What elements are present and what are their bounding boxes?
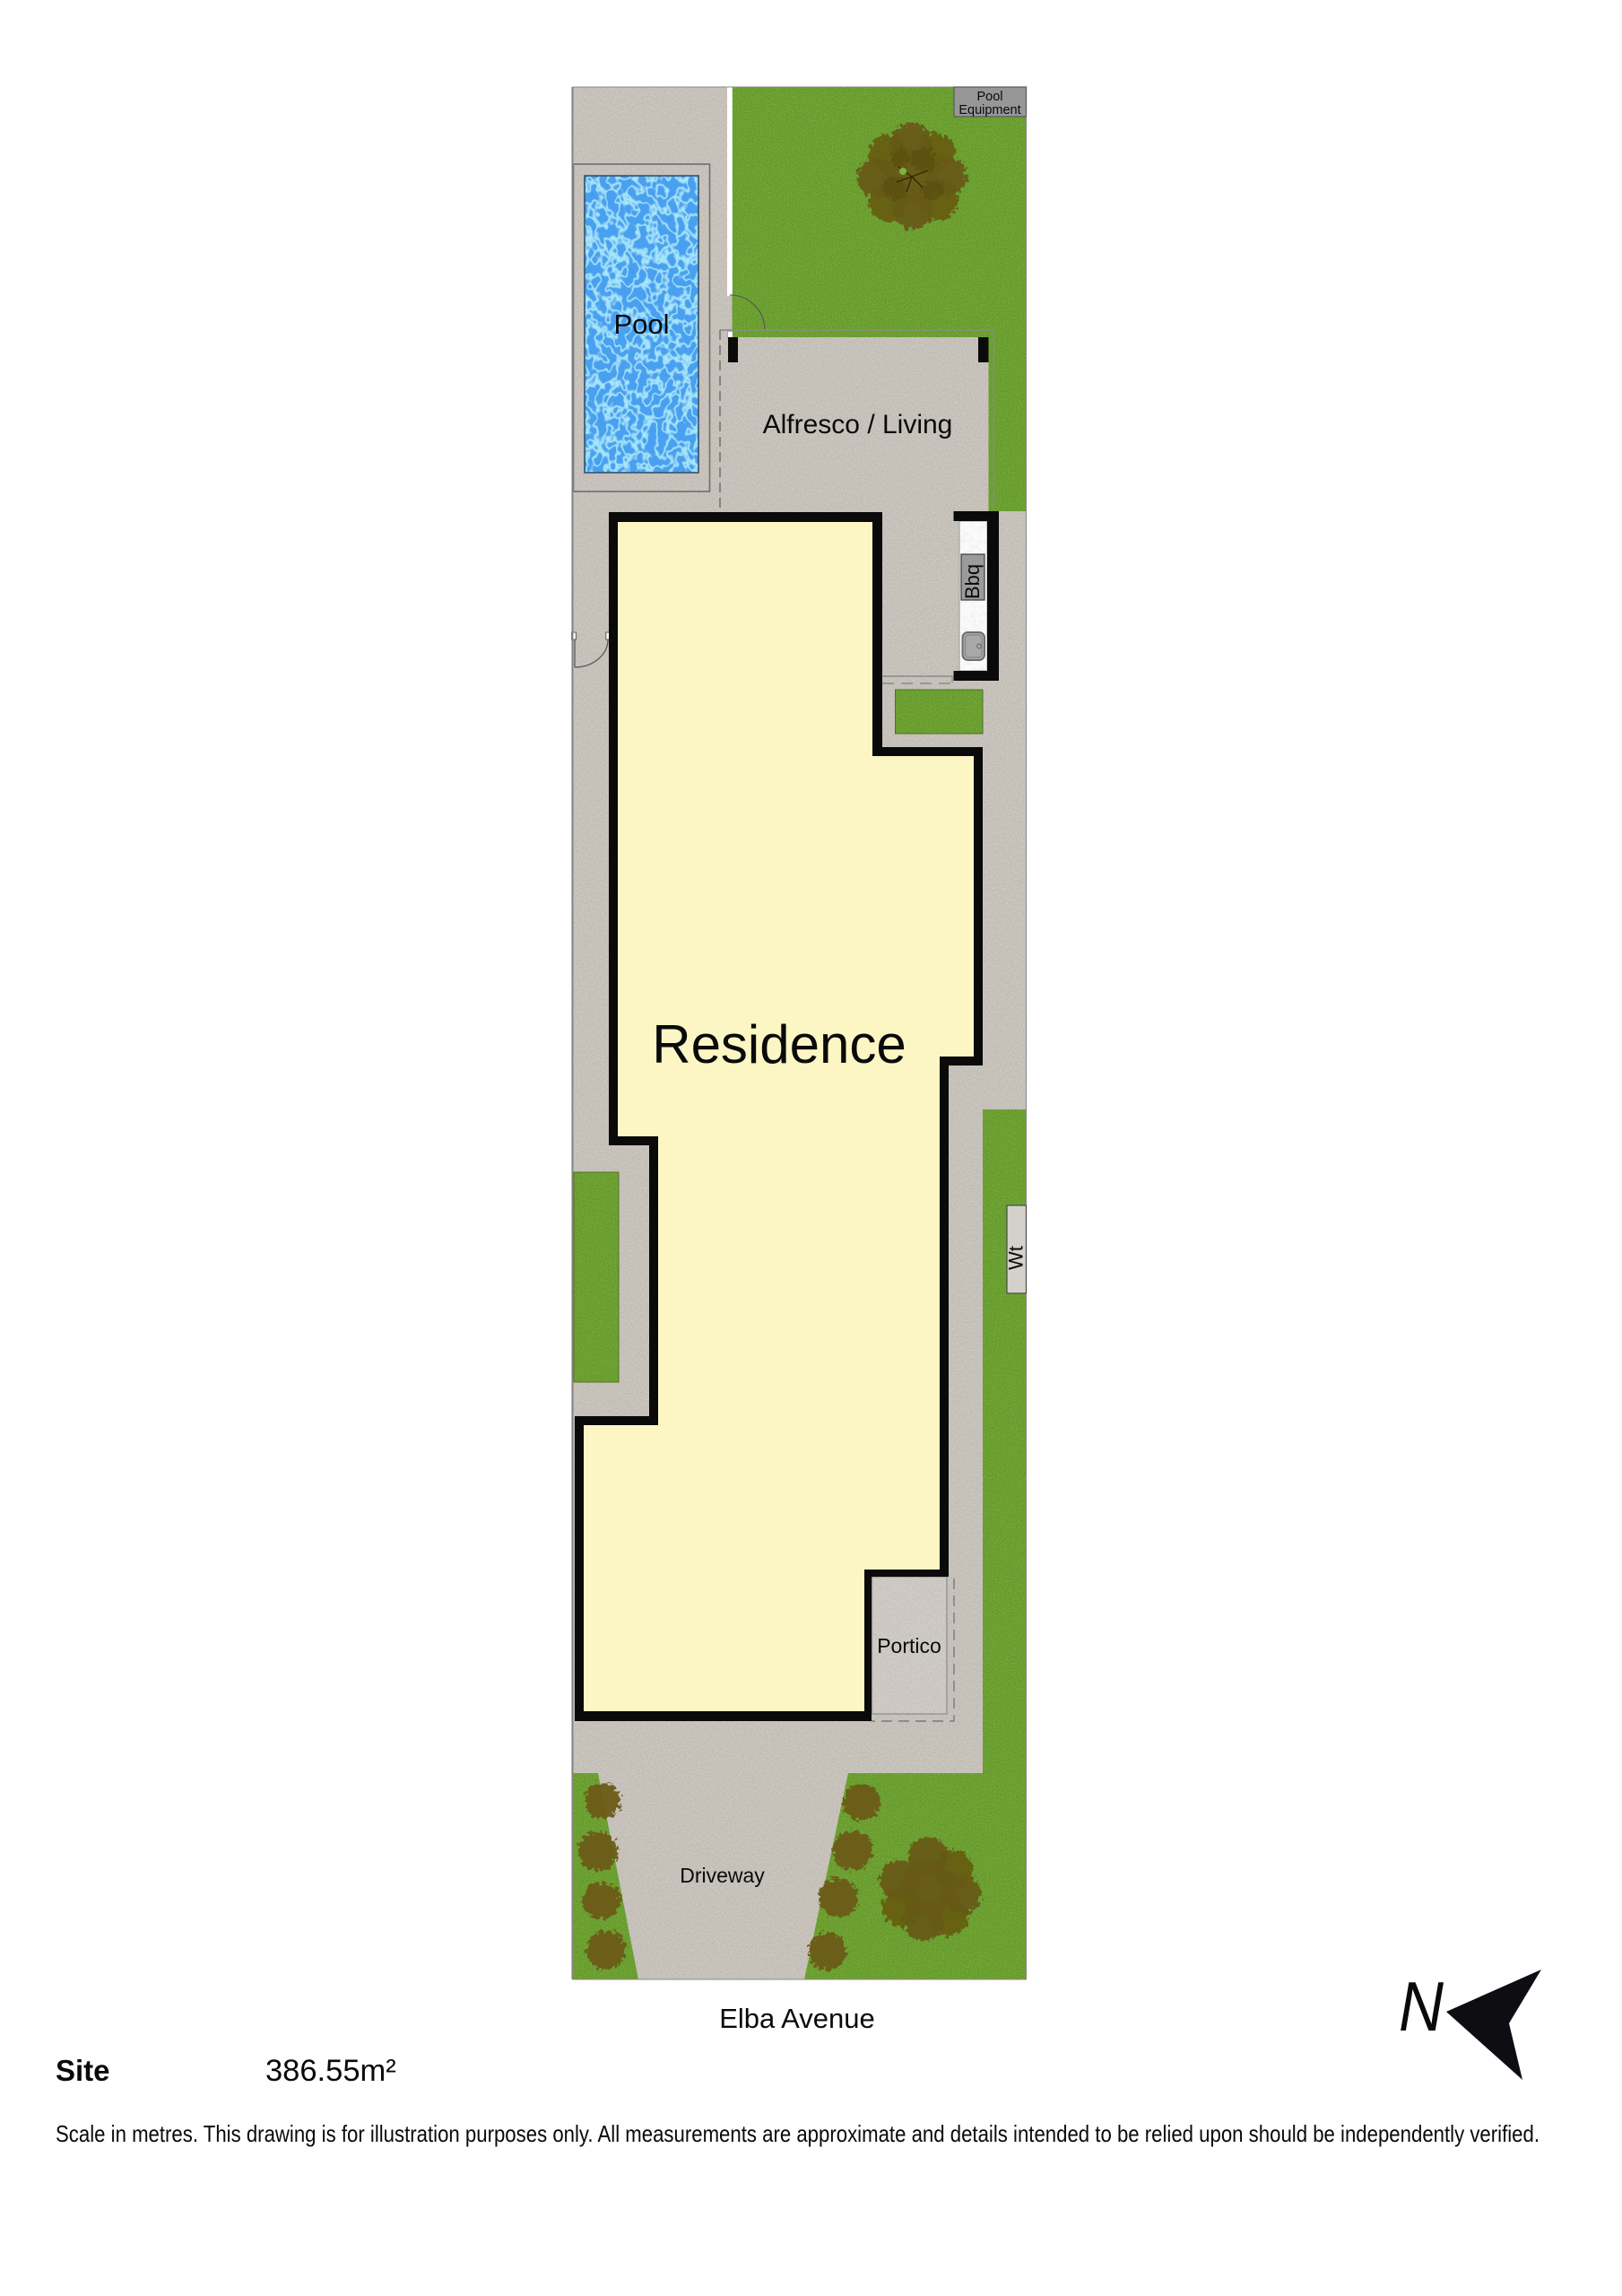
svg-text:Pool: Pool — [613, 309, 669, 340]
svg-text:386.55m²: 386.55m² — [265, 2054, 396, 2088]
svg-text:Portico: Portico — [877, 1634, 941, 1657]
svg-text:Driveway: Driveway — [680, 1864, 765, 1887]
svg-text:Pool: Pool — [976, 90, 1002, 104]
svg-text:Elba Avenue: Elba Avenue — [719, 2003, 875, 2034]
svg-text:Scale in metres. This drawing: Scale in metres. This drawing is for ill… — [56, 2120, 1540, 2147]
svg-text:Equipment: Equipment — [958, 103, 1020, 117]
svg-text:Alfresco / Living: Alfresco / Living — [763, 410, 953, 439]
svg-text:N: N — [1399, 1967, 1444, 2046]
svg-text:Wt: Wt — [1005, 1246, 1028, 1270]
svg-text:Site: Site — [56, 2054, 110, 2087]
svg-text:Bbq: Bbq — [961, 564, 984, 599]
svg-text:Residence: Residence — [652, 1014, 906, 1074]
